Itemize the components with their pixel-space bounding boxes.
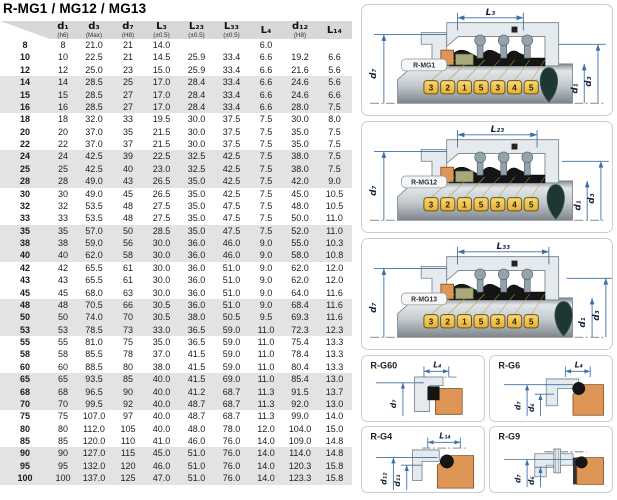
value-cell: 40.0	[144, 386, 179, 398]
row-label-cell: 55	[0, 336, 50, 348]
value-cell: 37.5	[214, 138, 249, 150]
value-cell: 15.0	[144, 64, 179, 76]
value-cell: 12.0	[249, 423, 283, 435]
value-cell: 40	[50, 249, 76, 261]
value-cell: 125	[112, 472, 144, 484]
value-cell: 80	[112, 361, 144, 373]
value-cell: 15.8	[317, 472, 352, 484]
value-cell: 12.0	[317, 262, 352, 274]
value-cell: 100	[50, 472, 76, 484]
value-cell: 9.0	[317, 175, 352, 187]
value-cell: 27.5	[144, 200, 179, 212]
value-cell: 45	[112, 188, 144, 200]
column-header: L₂₃(±0.5)	[179, 21, 214, 39]
value-cell: 8.0	[317, 113, 352, 125]
seal-face	[456, 288, 474, 299]
value-cell: 33.4	[214, 89, 249, 101]
value-cell: 30.5	[144, 311, 179, 323]
row-label-cell: 80	[0, 423, 50, 435]
column-header: d₇(H8)	[112, 21, 144, 39]
value-cell: 33	[112, 113, 144, 125]
value-cell: 15	[50, 89, 76, 101]
column-header: L₁₄	[317, 21, 352, 39]
value-cell: 10	[50, 51, 76, 63]
value-cell: 6.6	[249, 51, 283, 63]
table-row: 333353.54827.535.047.57.550.011.0	[0, 212, 352, 224]
table-row: 585885.57837.041.559.011.078.413.3	[0, 348, 352, 360]
value-cell: 75	[50, 410, 76, 422]
value-cell: 110	[112, 435, 144, 447]
value-cell: 28.4	[179, 101, 214, 113]
value-cell: 48	[112, 212, 144, 224]
column-header: L₃(±0.5)	[144, 21, 179, 39]
position-tag: 5	[524, 81, 538, 94]
value-cell: 78.5	[76, 324, 112, 336]
value-cell: 78.4	[283, 348, 317, 360]
value-cell: 53	[50, 324, 76, 336]
value-cell: 10.5	[317, 188, 352, 200]
value-cell: 69.0	[214, 373, 249, 385]
position-tag-number: 3	[495, 316, 500, 326]
value-cell: 24.6	[283, 89, 317, 101]
row-label-cell: 60	[0, 361, 50, 373]
value-cell: 51.0	[214, 262, 249, 274]
value-cell: 85	[112, 373, 144, 385]
position-tag-number: 5	[529, 199, 534, 209]
value-cell: 63	[112, 287, 144, 299]
value-cell: 66	[112, 299, 144, 311]
row-label-cell: 35	[0, 225, 50, 237]
value-cell: 93.5	[76, 373, 112, 385]
value-cell: 7.5	[249, 163, 283, 175]
value-cell: 96.5	[76, 386, 112, 398]
value-cell: 68	[50, 386, 76, 398]
value-cell: 61	[112, 274, 144, 286]
position-tag-number: 5	[479, 316, 484, 326]
diagram-rmg13: 3215345 R-MG13 L₃₃ d₇ d₁	[361, 238, 613, 350]
row-label-cell: 28	[0, 175, 50, 187]
row-label-cell: 32	[0, 200, 50, 212]
position-tag-number: 4	[512, 199, 517, 209]
table-row: 202037.03521.530.037.57.535.07.5	[0, 126, 352, 138]
value-cell: 21.5	[144, 126, 179, 138]
position-tag-number: 1	[462, 316, 467, 326]
value-cell: 45.0	[283, 188, 317, 200]
value-cell: 21.6	[283, 64, 317, 76]
value-cell: 62.0	[76, 249, 112, 261]
value-cell: 37	[112, 138, 144, 150]
dim-label-d7: d₇	[513, 401, 522, 410]
value-cell: 14.0	[249, 460, 283, 472]
value-cell: 70	[50, 398, 76, 410]
table-row: 555581.07535.036.559.011.075.413.3	[0, 336, 352, 348]
dim-label-l4: L₄	[575, 360, 583, 369]
value-cell: 65	[50, 373, 76, 385]
value-cell: 11.3	[249, 410, 283, 422]
value-cell: 36.0	[179, 249, 214, 261]
row-label-cell: 70	[0, 398, 50, 410]
value-cell: 22	[50, 138, 76, 150]
value-cell: 85.5	[76, 348, 112, 360]
table-row: 323253.54827.535.047.57.548.010.5	[0, 200, 352, 212]
value-cell: 6.0	[249, 39, 283, 51]
position-tag: 5	[474, 198, 488, 211]
value-cell: 7.5	[249, 150, 283, 162]
value-cell: 13.3	[317, 361, 352, 373]
table-row: 404062.05830.036.046.09.058.010.8	[0, 249, 352, 261]
value-cell: 21	[112, 51, 144, 63]
position-tag: 3	[491, 81, 505, 94]
value-cell: 11.0	[317, 212, 352, 224]
value-cell: 74.0	[76, 311, 112, 323]
row-label-cell: 38	[0, 237, 50, 249]
value-cell: 41.5	[179, 348, 214, 360]
value-cell: 70	[112, 311, 144, 323]
position-tag-number: 4	[512, 82, 517, 92]
value-cell: 36.5	[179, 336, 214, 348]
row-label-cell: 22	[0, 138, 50, 150]
value-cell: 99.0	[283, 410, 317, 422]
seat-title: R-G9	[498, 431, 520, 441]
value-cell: 7.5	[249, 126, 283, 138]
value-cell: 10.3	[317, 237, 352, 249]
position-tag-number: 5	[479, 82, 484, 92]
value-cell: 68.7	[214, 386, 249, 398]
position-tag: 2	[441, 198, 455, 211]
value-cell: 35.0	[179, 200, 214, 212]
dim-label-d1: d₁	[573, 200, 583, 210]
value-cell: 42.5	[76, 150, 112, 162]
value-cell: 40.0	[144, 410, 179, 422]
value-cell: 5.6	[317, 64, 352, 76]
value-cell: 13.3	[317, 348, 352, 360]
o-ring-icon	[576, 457, 587, 468]
value-cell: 48.7	[179, 410, 214, 422]
value-cell: 21	[112, 39, 144, 51]
value-cell: 50	[50, 311, 76, 323]
value-cell: 32	[50, 200, 76, 212]
column-header: d₃(Max)	[76, 21, 112, 39]
value-cell: 6.6	[317, 89, 352, 101]
value-cell: 28.5	[76, 76, 112, 88]
o-ring-icon	[440, 455, 453, 468]
value-cell: 38	[50, 237, 76, 249]
value-cell: 46.0	[214, 237, 249, 249]
dim-label-top: L₂₃	[491, 125, 504, 135]
dim-label-top: L₃	[486, 8, 496, 18]
dim-label-l14: L₁₄	[439, 431, 451, 440]
position-tag: 5	[524, 198, 538, 211]
value-cell: 49.0	[76, 188, 112, 200]
value-cell: 35.0	[179, 212, 214, 224]
value-cell: 37.0	[76, 126, 112, 138]
value-cell: 12	[50, 64, 76, 76]
value-cell: 14.0	[249, 435, 283, 447]
position-tag: 5	[524, 315, 538, 328]
value-cell: 52.0	[283, 225, 317, 237]
value-cell: 109.0	[283, 435, 317, 447]
value-cell: 14.8	[317, 447, 352, 459]
value-cell: 42.5	[214, 175, 249, 187]
row-label-cell: 75	[0, 410, 50, 422]
value-cell: 22.5	[76, 51, 112, 63]
table-row: 141428.52517.028.433.46.624.65.6	[0, 76, 352, 88]
value-cell: 11.0	[249, 324, 283, 336]
position-tag: 3	[491, 198, 505, 211]
value-cell: 43	[112, 175, 144, 187]
diagram-rg9: R-G9 d₇ d₆	[489, 426, 613, 493]
diagram-rg6: R-G6 L₄ d₇ d₆	[489, 355, 613, 422]
position-tag-number: 4	[512, 316, 517, 326]
value-cell: 33.4	[214, 76, 249, 88]
value-cell: 7.5	[317, 163, 352, 175]
position-tag-number: 2	[445, 316, 450, 326]
value-cell: 114.0	[283, 447, 317, 459]
position-tag-number: 3	[429, 82, 434, 92]
value-cell: 42.5	[214, 163, 249, 175]
table-row: 7575107.09740.048.768.711.399.014.0	[0, 410, 352, 422]
dim-label-d12: d₁₂	[380, 472, 389, 485]
value-cell: 14	[50, 76, 76, 88]
value-cell: 30.0	[144, 237, 179, 249]
value-cell: 28.5	[76, 101, 112, 113]
value-cell: 32.5	[179, 150, 214, 162]
column-header: d₁₂(H8)	[283, 21, 317, 39]
value-cell: 35.0	[283, 126, 317, 138]
value-cell: 92	[112, 398, 144, 410]
row-label-cell: 18	[0, 113, 50, 125]
row-label-cell: 30	[0, 188, 50, 200]
value-cell: 51.0	[214, 274, 249, 286]
table-row: 9595132.012046.051.076.014.0120.315.8	[0, 460, 352, 472]
value-cell: 48	[112, 200, 144, 212]
value-cell: 7.5	[249, 113, 283, 125]
value-cell: 13.3	[317, 336, 352, 348]
value-cell	[317, 39, 352, 51]
springs	[475, 152, 533, 175]
value-cell: 37.5	[214, 113, 249, 125]
table-row: 8080112.010540.048.078.012.0104.015.0	[0, 423, 352, 435]
value-cell: 48	[50, 299, 76, 311]
value-cell: 37.0	[76, 138, 112, 150]
position-tag-number: 2	[445, 82, 450, 92]
value-cell: 64.0	[283, 287, 317, 299]
value-cell: 41.5	[179, 373, 214, 385]
seal-label: R-MG12	[411, 179, 437, 186]
value-cell: 22.5	[144, 150, 179, 162]
value-cell: 7.5	[317, 138, 352, 150]
value-cell: 30.0	[144, 262, 179, 274]
position-tag-number: 5	[529, 82, 534, 92]
value-cell: 50.0	[283, 212, 317, 224]
value-cell: 9.0	[249, 287, 283, 299]
value-cell: 38.0	[283, 163, 317, 175]
value-cell: 35.0	[283, 138, 317, 150]
value-cell: 40	[112, 163, 144, 175]
value-cell: 40.0	[144, 398, 179, 410]
value-cell: 49.0	[76, 175, 112, 187]
value-cell: 11.0	[317, 225, 352, 237]
value-cell: 26.5	[144, 175, 179, 187]
springs	[475, 35, 533, 58]
table-row: 686896.59040.041.268.711.391.513.7	[0, 386, 352, 398]
value-cell: 14.0	[144, 39, 179, 51]
value-cell: 19.5	[144, 113, 179, 125]
table-row: 8821.02114.06.0	[0, 39, 352, 51]
value-cell: 33	[50, 212, 76, 224]
value-cell: 25	[50, 163, 76, 175]
dim-label-d3: d₃	[584, 76, 594, 86]
seal-label: R-MG1	[413, 62, 435, 69]
row-label-cell: 43	[0, 274, 50, 286]
value-cell: 9.0	[249, 262, 283, 274]
table-row: 252542.54023.032.542.57.538.07.5	[0, 163, 352, 175]
value-cell: 11.3	[249, 398, 283, 410]
value-cell: 88.5	[76, 361, 112, 373]
value-cell: 80.4	[283, 361, 317, 373]
table-header-row: d₁(h6)d₃(Max)d₇(H8)L₃(±0.5)L₂₃(±0.5)L₃₃(…	[0, 21, 352, 39]
value-cell: 7.5	[249, 188, 283, 200]
value-cell: 17.0	[144, 101, 179, 113]
value-cell: 68.0	[76, 287, 112, 299]
value-cell: 42.0	[283, 175, 317, 187]
value-cell: 59.0	[214, 324, 249, 336]
position-tag-number: 3	[429, 316, 434, 326]
value-cell: 28.0	[283, 101, 317, 113]
row-label-cell: 53	[0, 324, 50, 336]
value-cell: 58	[112, 249, 144, 261]
row-label-cell: 25	[0, 163, 50, 175]
dim-label-top: L₃₃	[497, 242, 510, 252]
value-cell: 68.7	[214, 398, 249, 410]
value-cell: 13.0	[317, 373, 352, 385]
value-cell: 57.0	[76, 225, 112, 237]
value-cell: 10.8	[317, 249, 352, 261]
value-cell: 35.0	[144, 336, 179, 348]
value-cell: 115	[112, 447, 144, 459]
diagram-column: 3215345 R-MG1 L₃ d₇ d₁	[361, 4, 615, 493]
value-cell: 47.5	[214, 212, 249, 224]
position-tag: 4	[507, 81, 521, 94]
set-screw	[512, 27, 518, 33]
seal-label: R-MG13	[411, 296, 437, 303]
value-cell: 51.0	[179, 460, 214, 472]
position-tag: 4	[507, 315, 521, 328]
value-cell: 48.7	[179, 398, 214, 410]
value-cell: 32.0	[76, 113, 112, 125]
seat-title: R-G6	[498, 360, 520, 370]
position-tag: 1	[457, 315, 471, 328]
page-title: R-MG1 / MG12 / MG13	[3, 1, 146, 16]
value-cell: 27	[112, 101, 144, 113]
row-label-cell: 42	[0, 262, 50, 274]
value-cell: 76.0	[214, 460, 249, 472]
position-tag: 3	[424, 198, 438, 211]
value-cell: 120.3	[283, 460, 317, 472]
value-cell: 91.5	[283, 386, 317, 398]
value-cell: 15.0	[317, 423, 352, 435]
value-cell: 95	[50, 460, 76, 472]
dim-label-d3: d₃	[587, 193, 597, 203]
value-cell: 58.0	[283, 249, 317, 261]
table-row: 8585120.011041.046.076.014.0109.014.8	[0, 435, 352, 447]
table-row: 383859.05630.036.046.09.055.010.3	[0, 237, 352, 249]
value-cell: 28.4	[179, 76, 214, 88]
table-row: 707099.59240.048.768.711.392.013.0	[0, 398, 352, 410]
table-row: 656593.58540.041.569.011.085.413.0	[0, 373, 352, 385]
value-cell: 7.5	[317, 101, 352, 113]
value-cell: 127.0	[76, 447, 112, 459]
row-label-cell: 100	[0, 472, 50, 484]
value-cell: 23	[112, 64, 144, 76]
row-label-cell: 40	[0, 249, 50, 261]
position-tag-number: 3	[495, 82, 500, 92]
value-cell: 37.0	[144, 348, 179, 360]
corner-cell	[0, 21, 50, 39]
value-cell: 25.0	[76, 64, 112, 76]
value-cell: 26.5	[144, 188, 179, 200]
value-cell: 132.0	[76, 460, 112, 472]
row-label-cell: 12	[0, 64, 50, 76]
value-cell: 123.3	[283, 472, 317, 484]
value-cell: 33.4	[214, 101, 249, 113]
value-cell: 36.0	[179, 287, 214, 299]
diagram-rmg12: 3215345 R-MG12 L₂₃ d₇ d₁	[361, 121, 613, 233]
value-cell: 36.0	[179, 237, 214, 249]
value-cell: 7.5	[249, 200, 283, 212]
value-cell: 36.5	[179, 324, 214, 336]
dimension-table: d₁(h6)d₃(Max)d₇(H8)L₃(±0.5)L₂₃(±0.5)L₃₃(…	[0, 21, 352, 485]
value-cell: 62.0	[283, 262, 317, 274]
value-cell: 14.5	[144, 51, 179, 63]
dim-label-d6: d₆	[527, 475, 536, 484]
value-cell: 6.6	[249, 101, 283, 113]
value-cell: 40.0	[144, 373, 179, 385]
right-dimensions: d₁ d₃	[567, 278, 612, 337]
value-cell: 9.0	[249, 249, 283, 261]
value-cell: 30.0	[283, 113, 317, 125]
value-cell: 42	[50, 262, 76, 274]
value-cell: 46.0	[179, 435, 214, 447]
dim-label-d7: d₇	[369, 69, 379, 79]
value-cell: 41.5	[179, 361, 214, 373]
value-cell: 11.6	[317, 311, 352, 323]
row-label-cell: 65	[0, 373, 50, 385]
value-cell: 36.0	[179, 274, 214, 286]
value-cell: 16	[50, 101, 76, 113]
dim-label-d7: d₇	[369, 186, 379, 196]
value-cell: 7.5	[249, 212, 283, 224]
value-cell: 28	[50, 175, 76, 187]
value-cell: 107.0	[76, 410, 112, 422]
value-cell: 48.0	[283, 200, 317, 212]
table-row: 151528.52717.028.433.46.624.66.6	[0, 89, 352, 101]
value-cell: 80	[50, 423, 76, 435]
value-cell: 60	[50, 361, 76, 373]
value-cell: 76.0	[214, 447, 249, 459]
table-row: 222237.03721.530.037.57.535.07.5	[0, 138, 352, 150]
value-cell: 7.5	[317, 126, 352, 138]
row-label-cell: 68	[0, 386, 50, 398]
value-cell: 72.3	[283, 324, 317, 336]
value-cell: 73	[112, 324, 144, 336]
value-cell: 39	[112, 150, 144, 162]
value-cell: 59.0	[214, 348, 249, 360]
value-cell: 36.0	[179, 299, 214, 311]
table-row: 505074.07030.538.050.59.569.311.6	[0, 311, 352, 323]
diagram-rg4: R-G4 L₁₄ d₁₂ d₁₁	[361, 426, 485, 493]
value-cell: 50.5	[214, 311, 249, 323]
